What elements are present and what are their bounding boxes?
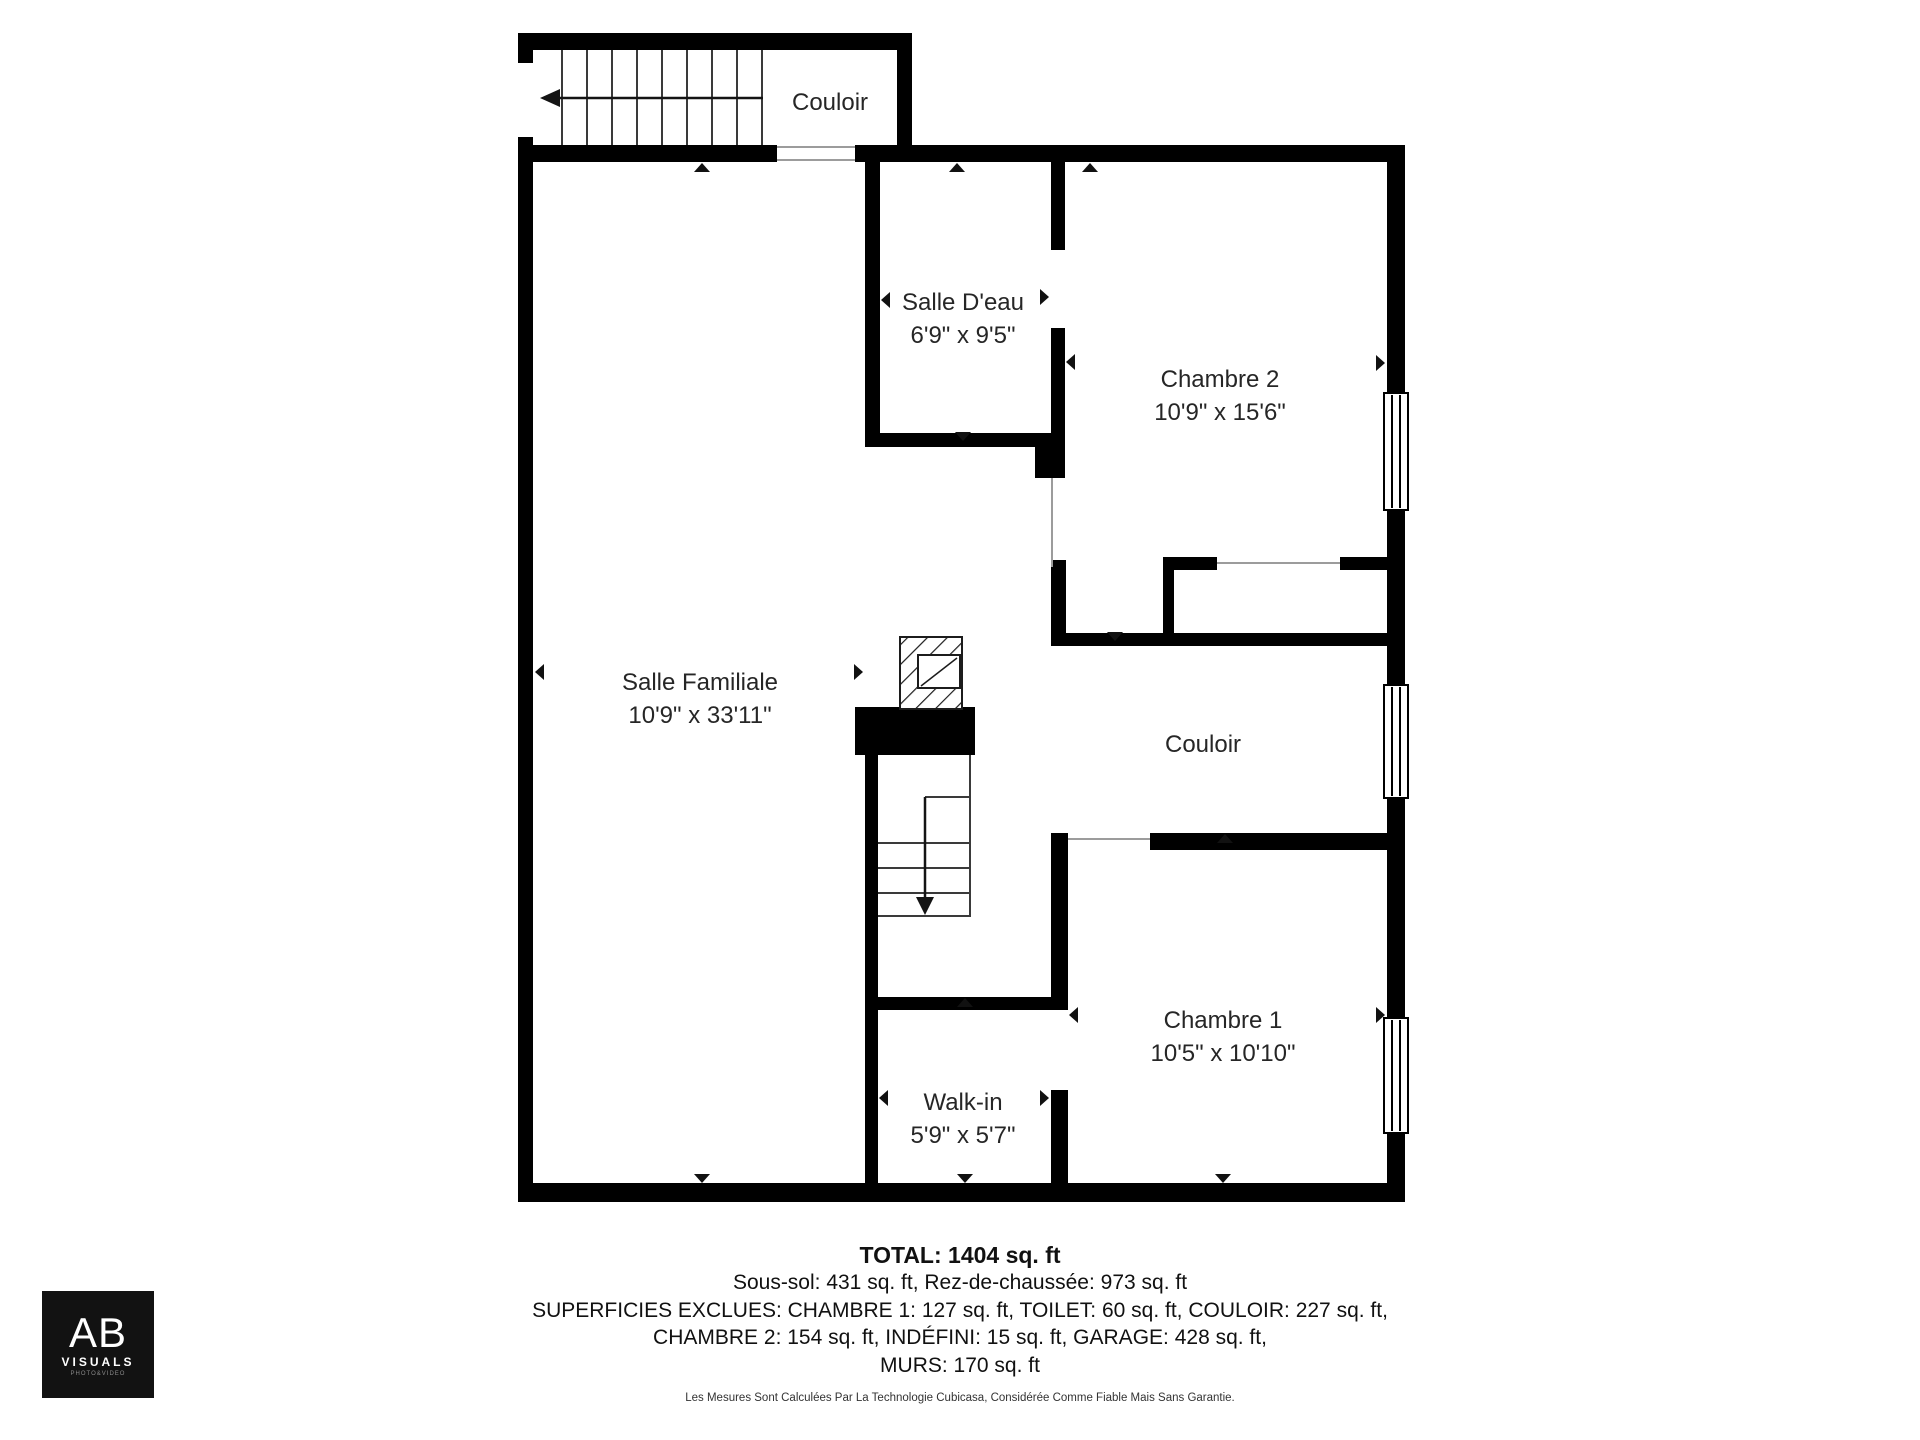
fireplace: [900, 637, 962, 709]
logo-brand: VISUALS: [61, 1355, 134, 1369]
marker-right-icon: [1040, 289, 1049, 305]
room-label-walk-in: Walk-in: [923, 1089, 1002, 1116]
room-dim-salle-deau: 6'9" x 9'5": [911, 322, 1016, 349]
room-dim-salle-familiale: 10'9" x 33'11": [628, 702, 771, 729]
room-label-chambre2: Chambre 2: [1161, 366, 1280, 393]
area-summary: TOTAL: 1404 sq. ft Sous-sol: 431 sq. ft,…: [0, 1241, 1920, 1379]
room-label-salle-familiale: Salle Familiale: [622, 669, 778, 696]
logo-initials: AB: [69, 1313, 127, 1353]
ab-visuals-logo: AB VISUALS PHOTO&VIDEO: [42, 1291, 154, 1398]
marker-left-icon: [879, 1090, 888, 1106]
disclaimer-text: Les Mesures Sont Calculées Par La Techno…: [0, 1392, 1920, 1404]
marker-up-icon: [694, 163, 710, 172]
window-couloir: [1384, 685, 1408, 798]
marker-left-icon: [1066, 354, 1075, 370]
room-label-couloir-mid: Couloir: [1165, 731, 1241, 758]
stairs-up-arrow: [540, 89, 763, 107]
marker-left-icon: [1069, 1007, 1078, 1023]
room-label-chambre1: Chambre 1: [1164, 1007, 1283, 1034]
marker-right-icon: [854, 664, 863, 680]
floor-areas-text: Sous-sol: 431 sq. ft, Rez-de-chaussée: 9…: [0, 1269, 1920, 1297]
excluded-areas-line3: MURS: 170 sq. ft: [0, 1352, 1920, 1380]
total-area-text: TOTAL: 1404 sq. ft: [0, 1241, 1920, 1269]
room-dim-chambre2: 10'9" x 15'6": [1154, 399, 1286, 426]
window-chambre2: [1384, 393, 1408, 510]
marker-up-icon: [949, 163, 965, 172]
room-dim-walk-in: 5'9" x 5'7": [911, 1122, 1016, 1149]
excluded-areas-line1: SUPERFICIES EXCLUES: CHAMBRE 1: 127 sq. …: [0, 1297, 1920, 1325]
room-dim-chambre1: 10'5" x 10'10": [1151, 1040, 1296, 1067]
room-label-salle-deau: Salle D'eau: [902, 289, 1024, 316]
window-chambre1: [1384, 1018, 1408, 1133]
marker-right-icon: [1040, 1090, 1049, 1106]
marker-left-icon: [535, 664, 544, 680]
windows: [1384, 393, 1408, 1133]
marker-down-icon: [694, 1174, 710, 1183]
marker-right-icon: [1376, 355, 1385, 371]
marker-left-icon: [881, 292, 890, 308]
floorplan-drawing: Couloir Salle D'eau 6'9" x 9'5" Chambre …: [0, 0, 1920, 1440]
stairs-down-arrow: [916, 797, 934, 915]
marker-down-icon: [957, 1174, 973, 1183]
excluded-areas-line2: CHAMBRE 2: 154 sq. ft, INDÉFINI: 15 sq. …: [0, 1324, 1920, 1352]
marker-up-icon: [1082, 163, 1098, 172]
marker-down-icon: [1215, 1174, 1231, 1183]
floorplan-page: Couloir Salle D'eau 6'9" x 9'5" Chambre …: [0, 0, 1920, 1440]
room-label-couloir-top: Couloir: [792, 89, 868, 116]
logo-tagline: PHOTO&VIDEO: [71, 1371, 126, 1377]
